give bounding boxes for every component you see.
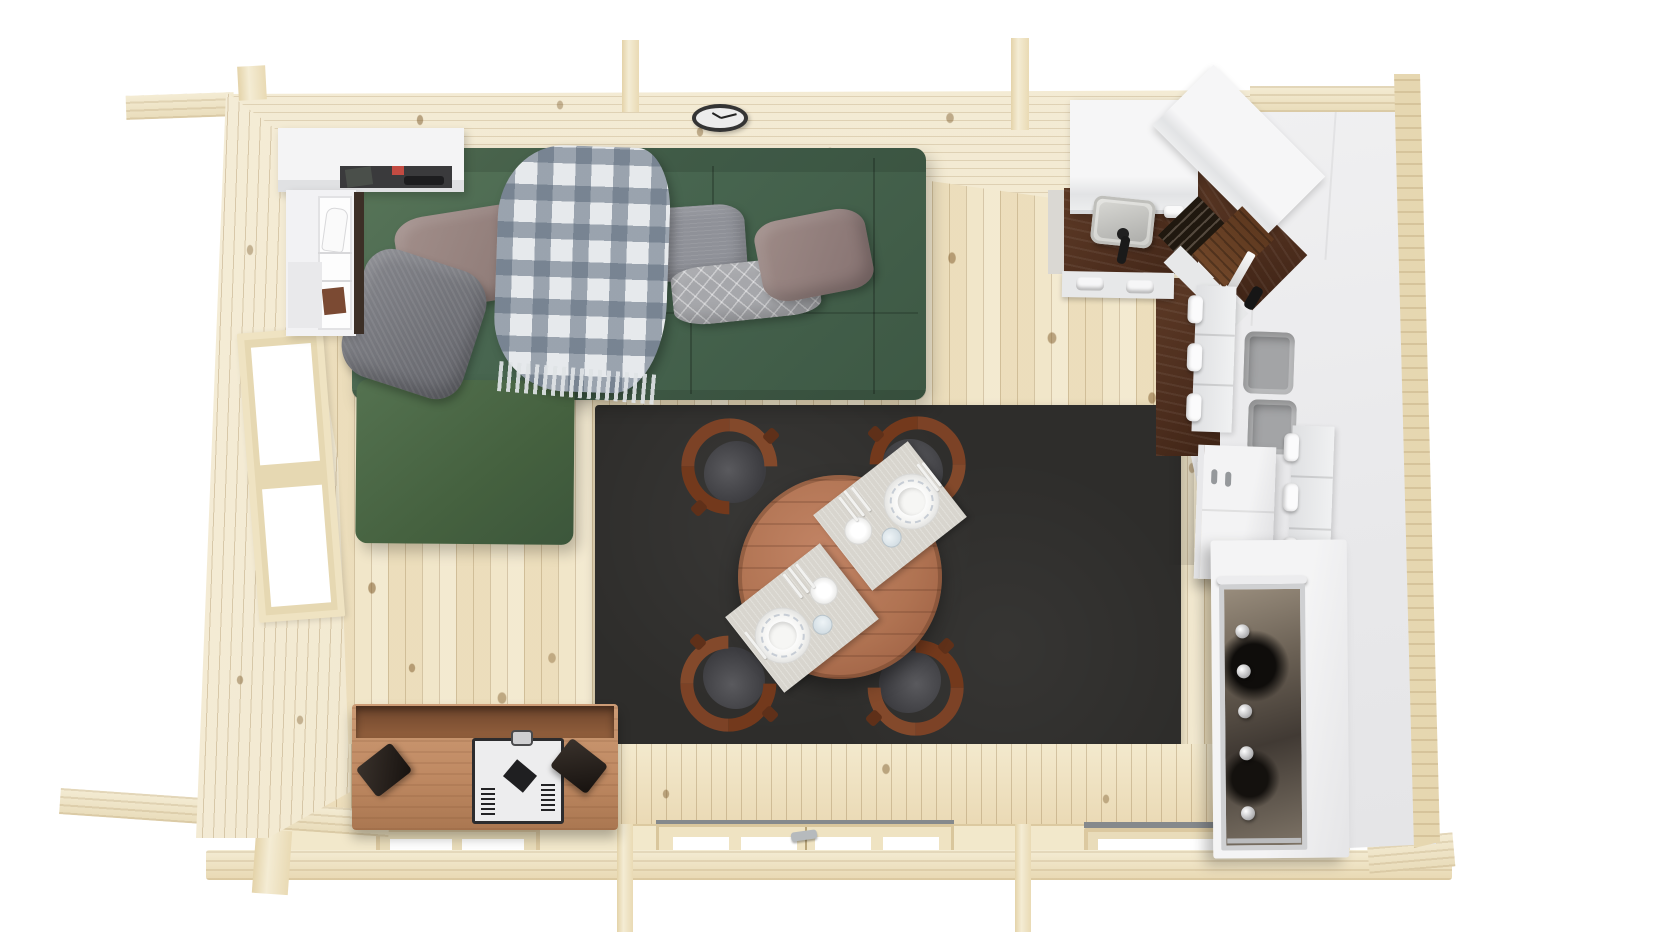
drawer-handle[interactable]: [1283, 483, 1299, 512]
tv-stand: [352, 704, 618, 830]
drawer-handle[interactable]: [1187, 295, 1203, 324]
scene-caption: Log cabin interior - top-down 3D floor p…: [0, 0, 1, 1]
cabinet-handle[interactable]: [1076, 277, 1104, 290]
oven-vent: [1227, 838, 1301, 844]
oven-knob[interactable]: [1241, 806, 1255, 820]
log-end-plate-top-left: [126, 92, 235, 120]
oven-knob[interactable]: [1239, 746, 1253, 760]
shelf-open-column: [318, 196, 352, 330]
drawer-seam: [1291, 475, 1333, 478]
log-end-beam-bottom-2: [1015, 824, 1031, 932]
stove-vent: [541, 781, 555, 811]
base-cabinet-front: [1062, 271, 1174, 299]
drawer-stack-upper: [1191, 285, 1236, 432]
drawer-handle[interactable]: [1186, 393, 1202, 422]
roof-beam-2: [1011, 38, 1029, 130]
shelf-item-box: [322, 287, 347, 315]
cabinet-seam: [1202, 509, 1274, 514]
shelf-open-slot: [340, 166, 452, 188]
shelf-item-shoe: [321, 207, 349, 254]
speaker-left: [356, 742, 413, 797]
cabinet-handle[interactable]: [1126, 280, 1154, 293]
sofa-seam: [873, 158, 875, 394]
wall-clock: [692, 104, 748, 132]
shelf-item-bag: [345, 166, 373, 187]
shelf-side-panel: [354, 192, 364, 334]
remote-control: [404, 176, 444, 185]
oven-glass-door[interactable]: [1219, 584, 1307, 851]
cabinet-handle[interactable]: [1225, 472, 1232, 487]
oven: [1211, 539, 1350, 858]
clock-hour-hand: [712, 112, 722, 119]
corner-post-top-left: [237, 65, 267, 100]
drawer-handle[interactable]: [1187, 343, 1203, 372]
shelf-divider: [318, 280, 352, 282]
side-plate: [804, 571, 843, 610]
door-handle[interactable]: [791, 829, 818, 842]
drawer-seam: [1289, 527, 1331, 530]
drawer-seam: [1193, 383, 1233, 386]
window-pane: [262, 485, 331, 607]
log-end-beam-bottom-1: [617, 824, 633, 932]
drawer-handle[interactable]: [1283, 433, 1299, 462]
stove-tilt-detail: [503, 759, 537, 793]
tv-stand-open-shelf: [356, 706, 614, 738]
oven-knob[interactable]: [1238, 704, 1252, 718]
shelf-item-red: [392, 166, 404, 175]
corner-post-bottom-left: [252, 829, 292, 895]
sofa-chaise: [355, 379, 574, 545]
floor-plan-render: Log cabin interior - top-down 3D floor p…: [0, 0, 1680, 945]
cutlery: [851, 487, 872, 512]
window-pane: [251, 343, 320, 465]
cutlery: [795, 563, 816, 588]
corner-shelf-step: [288, 262, 322, 328]
side-plate: [839, 511, 878, 550]
storage-bin: [1243, 331, 1295, 395]
oven-knob[interactable]: [1237, 664, 1251, 678]
drawer-seam: [1195, 333, 1235, 336]
cabinet-handle[interactable]: [1211, 469, 1218, 484]
corner-shelf-horizontal: [278, 128, 464, 192]
sofa-seam: [690, 316, 692, 394]
stove-knob: [511, 730, 533, 746]
oven-knob[interactable]: [1235, 624, 1249, 638]
clock-minute-hand: [721, 113, 737, 119]
stove-vent: [481, 785, 495, 815]
plaid-blanket: [492, 143, 672, 395]
stove-unit: [472, 738, 564, 824]
log-end-plate-top-right: [1250, 86, 1416, 112]
cup: [809, 611, 837, 639]
roof-beam-1: [622, 40, 639, 112]
